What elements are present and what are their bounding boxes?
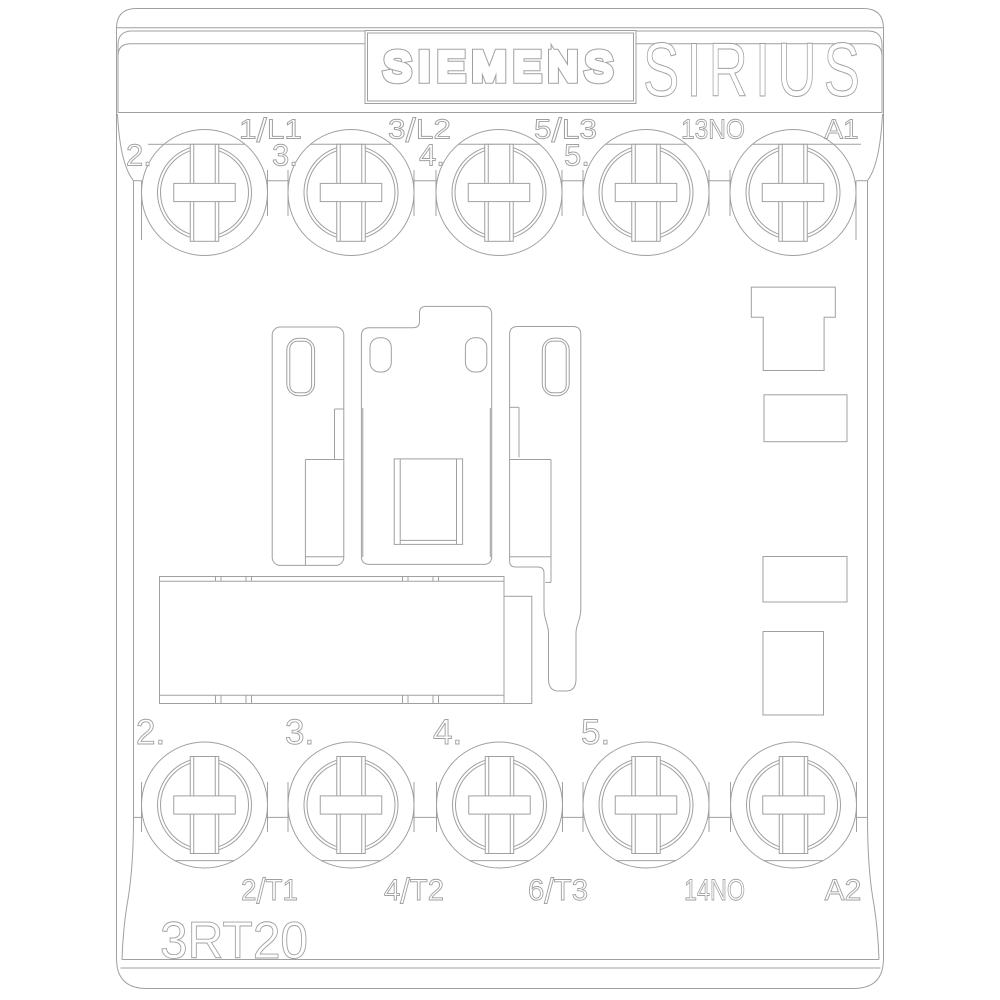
svg-text:4/T2: 4/T2 xyxy=(384,872,444,911)
svg-text:6/T3: 6/T3 xyxy=(528,872,588,911)
svg-text:13NO: 13NO xyxy=(681,114,745,145)
svg-text:2.: 2. xyxy=(136,713,165,752)
svg-text:A2: A2 xyxy=(825,874,862,907)
svg-text:5.: 5. xyxy=(564,138,590,173)
svg-text:A1: A1 xyxy=(824,114,858,145)
svg-text:SIRIUS: SIRIUS xyxy=(643,28,867,113)
svg-text:3RT20: 3RT20 xyxy=(160,912,308,970)
svg-text:5.: 5. xyxy=(581,713,610,752)
svg-text:4.: 4. xyxy=(419,138,445,173)
svg-text:14NO: 14NO xyxy=(684,874,745,907)
svg-text:2/T1: 2/T1 xyxy=(241,872,298,911)
svg-text:2.: 2. xyxy=(126,138,152,173)
svg-text:3.: 3. xyxy=(285,713,314,752)
svg-text:4.: 4. xyxy=(433,713,462,752)
svg-text:3.: 3. xyxy=(272,138,298,173)
svg-text:SIEMENS: SIEMENS xyxy=(384,45,620,89)
